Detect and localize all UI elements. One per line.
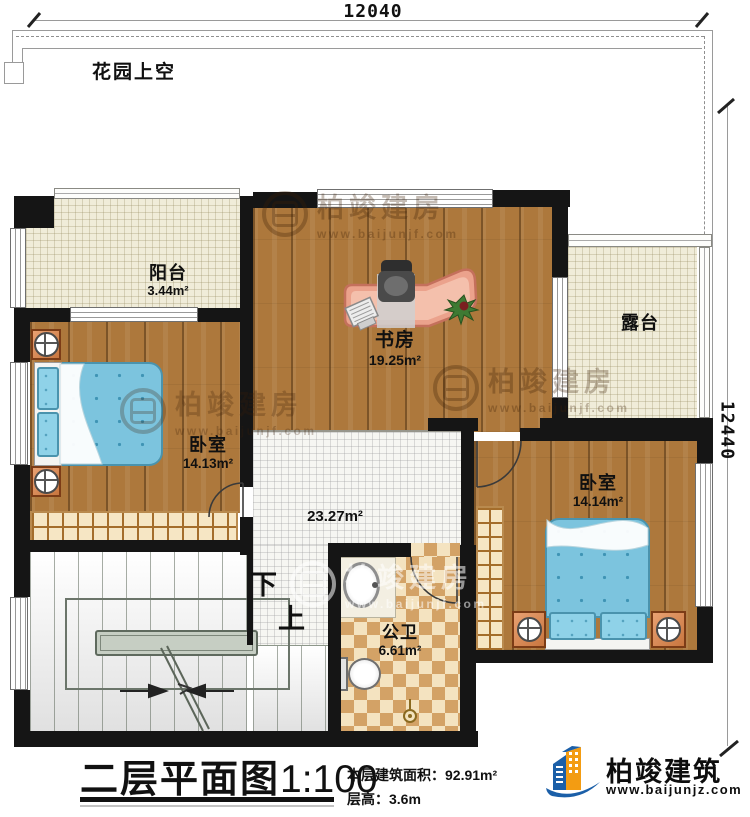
hall-floor bbox=[253, 432, 461, 545]
bed-pillow bbox=[549, 612, 596, 640]
floor-height-row: 层高：3.6m bbox=[347, 789, 421, 809]
stairs-down-label: 下 bbox=[250, 570, 277, 601]
bed-pillow bbox=[600, 612, 647, 640]
bed-pillow bbox=[37, 367, 59, 410]
garden-label: 花园上空 bbox=[92, 62, 176, 84]
wall-balcony-study bbox=[240, 196, 253, 322]
bedroom-right-window bbox=[695, 463, 713, 607]
wall-bedroomR-top bbox=[520, 428, 700, 441]
garden-inner-line bbox=[22, 48, 702, 49]
wall-stairs-top bbox=[26, 540, 247, 552]
balcony-sliding-door bbox=[70, 307, 198, 322]
brand-logo-icon bbox=[542, 744, 604, 802]
wall-left-b bbox=[14, 465, 30, 597]
title-underline-shadow bbox=[80, 805, 334, 807]
balcony-railing bbox=[54, 188, 240, 199]
nightstand bbox=[651, 611, 686, 648]
bed-pillow bbox=[37, 412, 59, 457]
wardrobe-left-bedroom bbox=[30, 511, 238, 542]
lamp-icon bbox=[517, 617, 542, 642]
brand-website: www.baijunjz.com bbox=[606, 782, 742, 797]
wall-bathroom-right bbox=[460, 545, 476, 745]
terrace-railing-top bbox=[568, 234, 712, 247]
wall-balcony-bottom-right bbox=[198, 308, 253, 322]
study-floor bbox=[253, 203, 552, 432]
floorplan-canvas: 12040 12440 花园上空 bbox=[0, 0, 750, 817]
lamp-icon bbox=[656, 617, 681, 642]
wall-bedroomR-right-upper bbox=[697, 433, 713, 463]
top-dimension-value: 12040 bbox=[318, 1, 428, 22]
toilet-bowl bbox=[348, 658, 381, 690]
study-terrace-door bbox=[552, 277, 568, 398]
wall-bathroom-top bbox=[328, 543, 411, 557]
nightstand bbox=[31, 329, 61, 360]
stair-center-landing bbox=[95, 630, 258, 656]
bathroom-label: 公卫 6.61m² bbox=[345, 623, 455, 658]
nightstand bbox=[31, 466, 61, 497]
terrace-railing-right bbox=[699, 247, 710, 418]
garden-setback-dash-top bbox=[16, 36, 704, 37]
wall-study-hall-lintel bbox=[428, 418, 478, 431]
title-underline bbox=[80, 797, 334, 802]
bed-left bbox=[34, 362, 163, 466]
bedroom-right-label: 卧室 14.14m² bbox=[543, 473, 653, 509]
sink-faucet-icon bbox=[372, 582, 378, 588]
lamp-icon bbox=[34, 469, 59, 494]
wall-bottom bbox=[14, 731, 478, 747]
floor-area-row: 本层建筑面积：92.91m² bbox=[347, 765, 497, 785]
stairs-up-label: 上 bbox=[278, 604, 305, 635]
right-dimension-value: 12440 bbox=[717, 390, 738, 472]
terrace-label: 露台 bbox=[595, 313, 685, 334]
wall-bathroom-left bbox=[328, 543, 341, 745]
balcony-left-window bbox=[10, 228, 26, 308]
wall-bedroomR-bottom bbox=[470, 650, 713, 663]
balcony-label: 阳台 3.44m² bbox=[113, 263, 223, 299]
wall-study-right-upper bbox=[552, 203, 568, 277]
wall-hall-bedroomR-jamb bbox=[461, 431, 474, 545]
study-top-window bbox=[317, 189, 493, 208]
nightstand bbox=[512, 611, 546, 648]
wall-top-left-block bbox=[14, 196, 54, 228]
bedroom-left-window bbox=[10, 362, 28, 465]
garden-boundary-top bbox=[12, 30, 712, 31]
wall-balcony-bottom-left bbox=[14, 308, 70, 322]
wall-study-top-left bbox=[253, 192, 317, 208]
wall-left-a bbox=[14, 322, 30, 362]
study-label: 书房 19.25m² bbox=[340, 330, 450, 368]
bathroom-door-patch bbox=[411, 543, 460, 557]
bedroom-left-label: 卧室 14.13m² bbox=[153, 435, 263, 471]
bed-quilt bbox=[545, 518, 650, 618]
hall-area-label: 23.27m² bbox=[280, 508, 390, 525]
wardrobe-right-bedroom bbox=[476, 506, 504, 652]
garden-left-notch bbox=[4, 62, 24, 84]
stairs-left-window bbox=[10, 597, 28, 690]
lamp-icon bbox=[34, 332, 59, 357]
bed-quilt bbox=[60, 362, 163, 466]
plan-title-text: 二层平面图 bbox=[80, 759, 280, 801]
bed-right bbox=[545, 518, 650, 650]
plan-title: 二层平面图1:100 bbox=[80, 748, 378, 803]
